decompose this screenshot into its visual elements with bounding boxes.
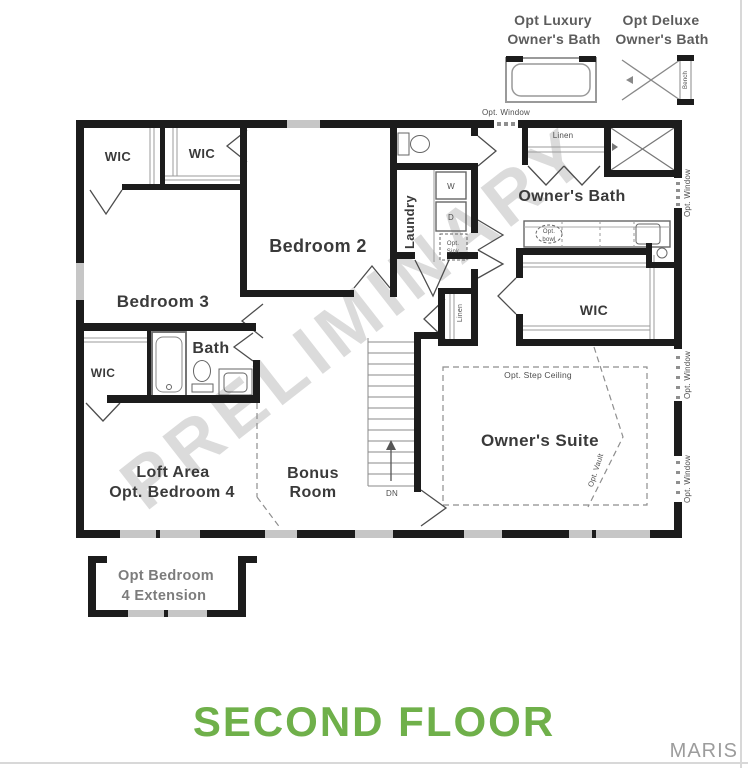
room-label-bedroom2: Bedroom 2: [269, 236, 367, 256]
tub: [152, 332, 186, 396]
opt-bowl-label-1: Opt.: [543, 229, 555, 235]
dryer-label: D: [448, 213, 454, 222]
loft-boundary-line: [257, 403, 281, 529]
opt-sink-label-2: Sink: [447, 249, 460, 255]
door-linen-bifold-b: [564, 166, 600, 185]
water-closet-toilet: [657, 248, 667, 258]
door-bath: [234, 333, 253, 361]
opt-vault-label: Opt. Vault: [586, 452, 606, 489]
opt-bowl-label-2: bowl: [542, 237, 555, 243]
toilet-bowl: [411, 136, 430, 153]
opt-window-label-top: Opt. Window: [482, 108, 530, 117]
room-label-bonus-line1: Bonus: [287, 465, 339, 482]
photo-edge-right: [740, 0, 742, 768]
tub-drain: [167, 385, 172, 390]
room-label-loft-line1: Loft Area: [136, 464, 209, 481]
room-label-owners-bath: Owner's Bath: [518, 188, 625, 205]
photo-edge-bottom: [0, 762, 748, 764]
deluxe-shower-head-marker: [626, 76, 633, 84]
linen-label-top: Linen: [553, 131, 574, 140]
staircase: [368, 338, 414, 486]
room-label-owners-suite: Owner's Suite: [481, 431, 599, 450]
opt-window-label-right-3: Opt. Window: [683, 455, 692, 503]
door-hall-b: [478, 250, 503, 278]
door-wic-right: [498, 278, 516, 314]
legend-luxury-line2: Owner's Bath: [507, 31, 600, 47]
legend-bench-label: Bench: [683, 71, 689, 89]
legend-deluxe-line1: Opt Deluxe: [623, 12, 700, 28]
room-label-laundry: Laundry: [402, 195, 417, 249]
bath-sink: [224, 373, 247, 392]
toilet-tank: [398, 133, 409, 155]
room-label-loft-line2: Opt. Bedroom 4: [109, 484, 235, 501]
room-label-wic-1: WIC: [105, 149, 132, 164]
door-wic1: [90, 190, 122, 214]
bath-toilet-tank: [192, 384, 213, 392]
opt-sink-label-1: Opt.: [447, 241, 459, 247]
linen-label-mid: Linen: [457, 304, 464, 322]
bath-toilet-bowl: [194, 361, 211, 382]
room-label-wic-2: WIC: [189, 146, 216, 161]
room-label-bedroom3: Bedroom 3: [117, 292, 209, 311]
door-owners-suite: [421, 490, 446, 526]
floorplan-image: PRELIMINARY: [0, 0, 748, 768]
room-label-bath: Bath: [192, 340, 229, 357]
legend-luxury-line1: Opt Luxury: [514, 12, 592, 28]
opt-window-label-right-2: Opt. Window: [683, 351, 692, 399]
shower-glass-x: [611, 128, 674, 170]
door-linen-bifold-a: [528, 166, 564, 185]
room-label-bonus-line2: Room: [290, 484, 337, 501]
door-toilet-room: [478, 136, 496, 166]
page-title: SECOND FLOOR: [0, 698, 748, 746]
legend-deluxe-line2: Owner's Bath: [615, 31, 708, 47]
door-bedroom2: [354, 266, 390, 288]
door-hall-a: [478, 220, 503, 250]
luxury-tub: [512, 64, 590, 96]
maris-watermark: MARIS: [670, 740, 738, 763]
opt-luxury-bath-diagram: [506, 56, 596, 102]
room-label-wic-right: WIC: [580, 302, 608, 318]
tub-inner: [156, 337, 182, 392]
stairs-dn-label: DN: [386, 489, 398, 498]
extension-label-line1: Opt Bedroom: [118, 568, 214, 584]
opt-step-ceiling-label: Opt. Step Ceiling: [504, 370, 572, 380]
opt-window-label-right-1: Opt. Window: [683, 169, 692, 217]
door-wic-left: [86, 403, 120, 421]
extension-label-line2: 4 Extension: [122, 588, 207, 604]
washer-label: W: [447, 182, 455, 191]
floorplan-drawing: Opt Luxury Owner's Bath Opt Deluxe Owner…: [0, 0, 748, 768]
room-label-wic-left: WIC: [91, 366, 116, 380]
shower-head-marker: [612, 143, 618, 151]
